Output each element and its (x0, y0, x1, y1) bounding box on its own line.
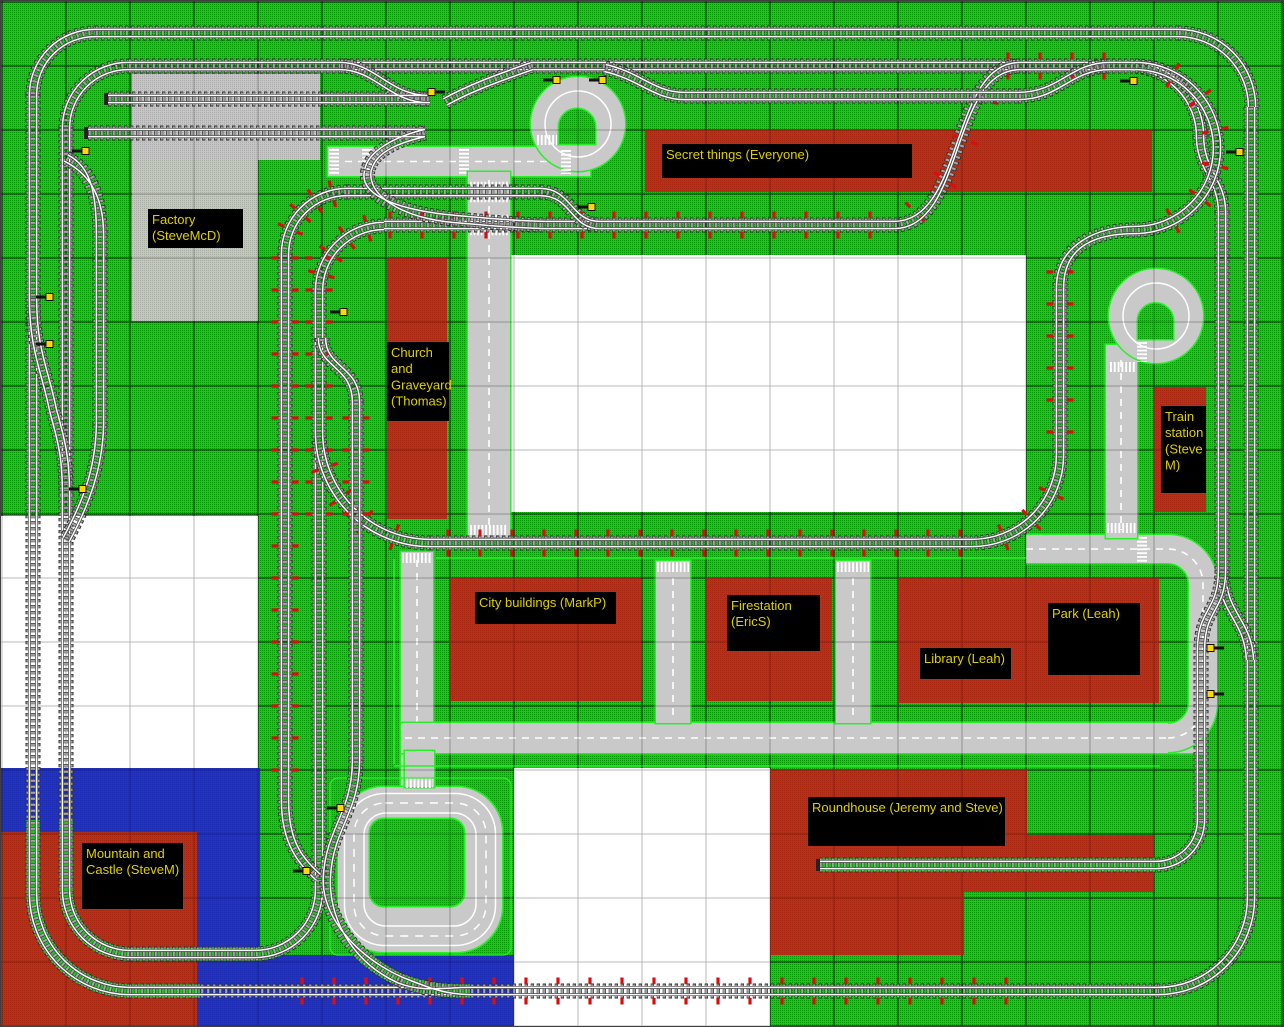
svg-text:Church: Church (391, 345, 433, 360)
svg-text:Secret things (Everyone): Secret things (Everyone) (666, 147, 809, 162)
svg-text:Park (Leah): Park (Leah) (1052, 606, 1120, 621)
svg-text:Graveyard: Graveyard (391, 377, 452, 392)
svg-text:Library (Leah): Library (Leah) (924, 651, 1005, 666)
svg-text:station: station (1165, 425, 1203, 440)
svg-text:Firestation: Firestation (731, 598, 792, 613)
svg-text:and: and (391, 361, 413, 376)
svg-text:(Steve: (Steve (1165, 441, 1203, 456)
svg-text:(EricS): (EricS) (731, 614, 771, 629)
svg-text:(SteveMcD): (SteveMcD) (152, 228, 221, 243)
svg-text:Mountain and: Mountain and (86, 846, 165, 861)
svg-text:Castle (SteveM): Castle (SteveM) (86, 862, 179, 877)
svg-text:Factory: Factory (152, 212, 196, 227)
svg-text:City buildings (MarkP): City buildings (MarkP) (479, 595, 606, 610)
svg-text:Roundhouse (Jeremy and Steve): Roundhouse (Jeremy and Steve) (812, 800, 1003, 815)
svg-text:(Thomas): (Thomas) (391, 394, 447, 409)
svg-text:M): M) (1165, 458, 1180, 473)
svg-text:Train: Train (1165, 409, 1194, 424)
